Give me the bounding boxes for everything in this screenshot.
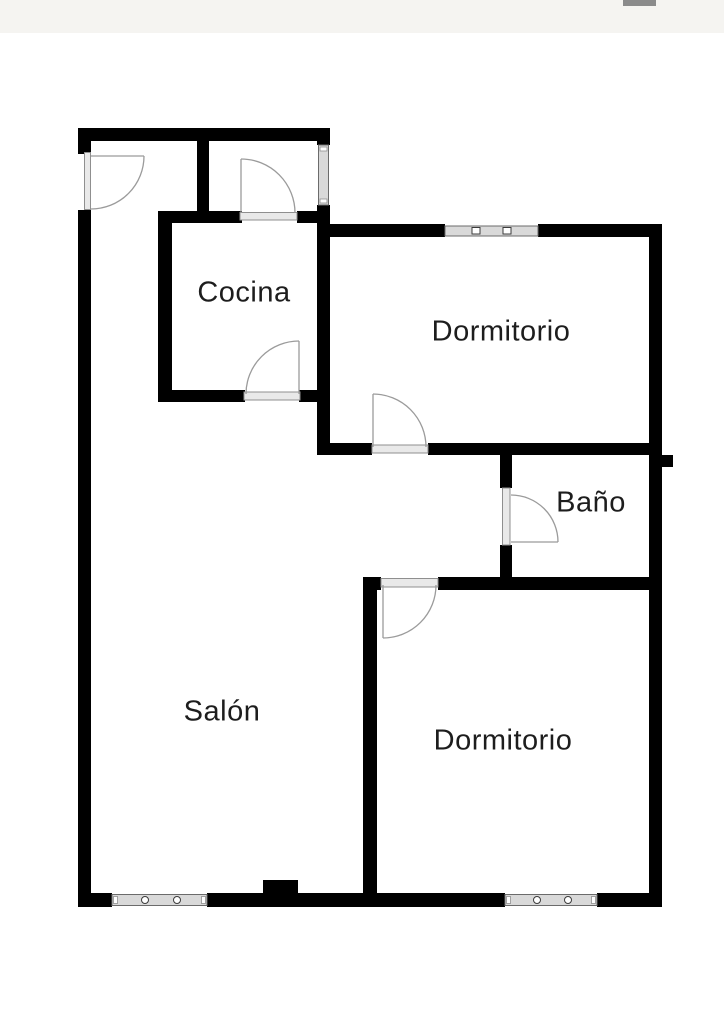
window-handle-square (503, 228, 511, 235)
exterior-wall-stub (662, 455, 673, 467)
bedroom1-bottom-wall-right-of-door (428, 443, 662, 455)
room-label-dormitorio-2: Dormitorio (434, 725, 573, 758)
window-end-cap (320, 147, 327, 151)
bathroom-door-arc (511, 495, 558, 542)
bedroom2-door-threshold (381, 579, 438, 588)
window-end-cap (507, 897, 511, 904)
bedroom2-window (505, 895, 597, 906)
window-end-cap (592, 897, 596, 904)
exterior-wall-left (78, 210, 91, 907)
kitchen-left-wall (158, 211, 172, 402)
kitchen-bottom-wall-left-of-door (158, 390, 245, 402)
living-room-window (112, 895, 207, 906)
bedroom1-window (445, 226, 538, 236)
scan-artifact-band (0, 0, 724, 33)
room-label-dormitorio-1: Dormitorio (432, 316, 571, 349)
bedroom1-door-arc (373, 394, 426, 447)
room-label-salon: Salón (184, 696, 261, 729)
kitchen-top-wall-right-of-door (297, 211, 330, 223)
window-handle-dot (565, 897, 572, 904)
chimney-column (263, 880, 298, 894)
bedroom2-left-wall (363, 577, 377, 907)
window-end-cap (202, 897, 206, 904)
gallery-and-mid-wall (317, 205, 330, 455)
kitchen-door-threshold (244, 392, 300, 400)
window-handle-dot (142, 897, 149, 904)
floor-plan: Cocina Dormitorio Baño Salón Dormitorio (0, 0, 724, 1024)
exterior-wall-left-above-entrance (78, 128, 91, 154)
scan-artifact-sliver (623, 0, 656, 6)
gallery-door-threshold (240, 213, 297, 221)
bedroom1-top-wall-right-of-window (538, 224, 662, 237)
window-handle-dot (534, 897, 541, 904)
hall-divider-wall (197, 128, 209, 214)
window-end-cap (320, 199, 327, 203)
window-handle-dot (174, 897, 181, 904)
bedroom2-top-wall-right-of-door (438, 577, 662, 590)
room-label-bano: Baño (556, 487, 626, 520)
bedroom2-door-arc (383, 585, 436, 638)
kitchen-bottom-wall-right-of-door (299, 390, 330, 402)
bathroom-door-threshold (503, 488, 511, 545)
entrance-door-arc (91, 156, 144, 209)
kitchen-door-arc (246, 341, 299, 394)
gallery-wall-above-window (317, 128, 330, 145)
exterior-wall-right (649, 224, 662, 907)
exterior-wall-bottom-left (78, 893, 112, 907)
bedroom1-top-wall-left-of-window (317, 224, 445, 237)
window-handle-square (472, 228, 480, 235)
gallery-door-arc (241, 159, 295, 213)
bedroom1-bottom-wall-left-of-door (317, 443, 372, 455)
bedroom1-door-threshold (372, 445, 428, 453)
room-label-cocina: Cocina (197, 277, 290, 310)
entrance-door-threshold (85, 153, 91, 210)
window-end-cap (114, 897, 118, 904)
bathroom-wall-above-door (500, 455, 512, 488)
exterior-wall-bottom-right (597, 893, 662, 907)
exterior-wall-bottom-middle (207, 893, 505, 907)
gallery-window (319, 145, 329, 205)
